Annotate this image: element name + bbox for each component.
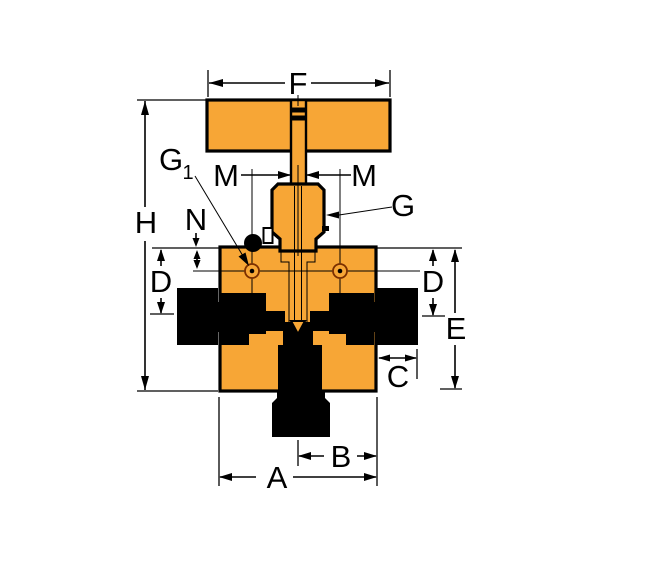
- bottom-channel: [278, 345, 322, 391]
- valve-dimension-diagram: F H M M N D D E C B A G G 1: [0, 0, 650, 580]
- stem-thread-mark: [292, 108, 306, 113]
- dim-label-f: F: [289, 66, 308, 101]
- dim-label-g: G: [391, 188, 415, 223]
- right-gauge-port-dot: [338, 269, 343, 274]
- dim-label-m-left: M: [213, 158, 239, 193]
- dim-label-g1: G: [159, 142, 183, 177]
- dim-label-d-right: D: [422, 264, 444, 299]
- dim-label-m-right: M: [351, 158, 377, 193]
- dim-label-h: H: [135, 205, 157, 240]
- diagram-svg: F H M M N D D E C B A G G 1: [0, 0, 650, 580]
- bottom-port: [272, 391, 330, 437]
- right-port-nut: [377, 288, 418, 345]
- dim-label-c: C: [387, 359, 409, 394]
- bonnet-step: [322, 226, 329, 231]
- left-port-notch: [249, 334, 266, 345]
- stem-thread-mark: [292, 116, 306, 121]
- dim-label-e: E: [446, 311, 467, 346]
- dim-label-n: N: [185, 202, 207, 237]
- dim-label-a: A: [267, 460, 288, 495]
- ball-detail: [244, 234, 262, 252]
- left-port-channel-step: [266, 311, 285, 331]
- right-port-notch: [329, 334, 346, 345]
- dim-label-b: B: [331, 439, 352, 474]
- dim-label-g1-subscript: 1: [182, 162, 193, 184]
- left-port-nut: [177, 288, 218, 345]
- left-gauge-port-dot: [250, 269, 255, 274]
- dim-label-d-left: D: [150, 264, 172, 299]
- packing-box: [264, 228, 273, 243]
